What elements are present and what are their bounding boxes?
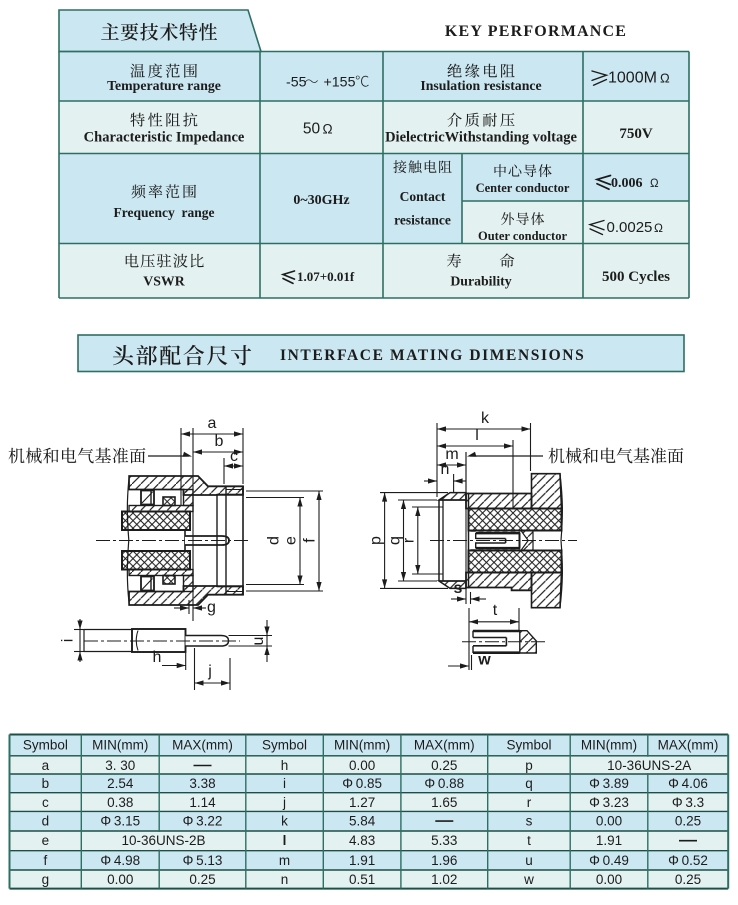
svg-text:MIN(mm): MIN(mm) <box>334 738 390 753</box>
svg-text:1.27: 1.27 <box>349 795 375 810</box>
svg-text:t: t <box>493 602 498 619</box>
svg-text:500 Cycles: 500 Cycles <box>602 269 670 285</box>
svg-text:m: m <box>279 853 290 868</box>
svg-text:1.91: 1.91 <box>596 833 622 848</box>
svg-text:1.02: 1.02 <box>431 872 457 887</box>
svg-text:n: n <box>441 461 450 478</box>
svg-text:i: i <box>283 776 286 791</box>
svg-text:Outer conductor: Outer conductor <box>478 229 567 243</box>
svg-text:Φ 4.06: Φ 4.06 <box>668 776 708 791</box>
svg-text:t: t <box>527 833 531 848</box>
svg-text:5.84: 5.84 <box>349 814 376 829</box>
svg-text:Symbol: Symbol <box>23 738 68 753</box>
svg-text:INTERFACE MATING DIMENSIONS: INTERFACE MATING DIMENSIONS <box>280 347 585 364</box>
svg-text:b: b <box>42 776 50 791</box>
svg-text:u: u <box>525 853 533 868</box>
svg-text:e: e <box>42 833 50 848</box>
svg-text:k: k <box>281 814 288 829</box>
svg-text:p: p <box>368 536 385 545</box>
svg-text:a: a <box>42 758 50 773</box>
svg-text:f: f <box>302 538 319 543</box>
svg-text:Ω: Ω <box>323 122 333 137</box>
svg-text:0.25: 0.25 <box>675 814 701 829</box>
svg-text:Symbol: Symbol <box>262 738 307 753</box>
svg-text:-55: -55 <box>286 75 307 91</box>
svg-text:750V: 750V <box>619 126 653 142</box>
svg-text:0.00: 0.00 <box>596 872 622 887</box>
svg-text:Φ 3.89: Φ 3.89 <box>589 776 629 791</box>
svg-text:0.51: 0.51 <box>349 872 375 887</box>
svg-text:1.96: 1.96 <box>431 853 457 868</box>
svg-text:l: l <box>283 833 287 848</box>
svg-text:VSWR: VSWR <box>143 274 185 289</box>
svg-text:Temperature range: Temperature range <box>107 78 221 93</box>
svg-text:KEY PERFORMANCE: KEY PERFORMANCE <box>445 23 627 40</box>
svg-text:Φ 5.13: Φ 5.13 <box>183 853 223 868</box>
svg-text:1.07+0.01f: 1.07+0.01f <box>297 269 355 284</box>
svg-text:0.25: 0.25 <box>675 872 701 887</box>
svg-text:Ω: Ω <box>660 71 670 86</box>
svg-text:3.38: 3.38 <box>189 776 215 791</box>
svg-text:a: a <box>208 415 217 432</box>
svg-text:Characteristic Impedance: Characteristic Impedance <box>84 130 245 146</box>
svg-text:j: j <box>207 663 212 680</box>
svg-text:resistance: resistance <box>394 213 451 228</box>
svg-text:Φ 3.15: Φ 3.15 <box>100 814 140 829</box>
svg-text:0.0025: 0.0025 <box>607 219 653 236</box>
svg-text:Φ 0.88: Φ 0.88 <box>424 776 464 791</box>
svg-text:s: s <box>454 580 463 597</box>
svg-text:Center conductor: Center conductor <box>476 181 570 195</box>
svg-text:Φ 0.52: Φ 0.52 <box>668 853 708 868</box>
svg-text:0.38: 0.38 <box>107 795 133 810</box>
svg-text:Contact: Contact <box>400 189 446 204</box>
svg-text:10-36UNS-2A: 10-36UNS-2A <box>607 758 691 773</box>
svg-text:10-36UNS-2B: 10-36UNS-2B <box>122 833 206 848</box>
svg-text:0.00: 0.00 <box>596 814 622 829</box>
svg-text:b: b <box>215 433 224 450</box>
svg-text:2.54: 2.54 <box>107 776 134 791</box>
svg-text:f: f <box>44 853 48 868</box>
svg-text:Durability: Durability <box>450 274 511 289</box>
svg-text:+155: +155 <box>324 75 356 91</box>
svg-text:0.006: 0.006 <box>611 176 643 191</box>
svg-text:g: g <box>42 872 50 887</box>
svg-text:Symbol: Symbol <box>506 738 551 753</box>
svg-text:r: r <box>401 537 418 543</box>
svg-text:0.25: 0.25 <box>431 758 457 773</box>
svg-text:MAX(mm): MAX(mm) <box>172 738 233 753</box>
svg-text:e: e <box>283 536 300 545</box>
svg-text:g: g <box>207 599 216 616</box>
svg-text:MIN(mm): MIN(mm) <box>92 738 148 753</box>
svg-text:w: w <box>477 652 491 669</box>
svg-text:Φ 3.3: Φ 3.3 <box>672 795 704 810</box>
svg-text:k: k <box>481 410 490 427</box>
svg-text:3. 30: 3. 30 <box>105 758 135 773</box>
svg-text:n: n <box>281 872 289 887</box>
svg-text:0.00: 0.00 <box>349 758 375 773</box>
svg-text:4.83: 4.83 <box>349 833 375 848</box>
svg-text:1000M: 1000M <box>608 70 657 87</box>
svg-text:s: s <box>526 814 533 829</box>
svg-text:Φ 3.23: Φ 3.23 <box>589 795 629 810</box>
svg-text:Insulation resistance: Insulation resistance <box>420 78 541 93</box>
svg-text:h: h <box>281 758 289 773</box>
svg-text:i: i <box>60 639 77 643</box>
svg-text:Φ 0.85: Φ 0.85 <box>342 776 382 791</box>
svg-text:d: d <box>42 814 50 829</box>
svg-text:Φ 3.22: Φ 3.22 <box>183 814 223 829</box>
svg-text:c: c <box>42 795 49 810</box>
svg-text:50: 50 <box>303 121 321 138</box>
svg-text:1.65: 1.65 <box>431 795 457 810</box>
svg-text:MAX(mm): MAX(mm) <box>658 738 719 753</box>
svg-text:h: h <box>153 649 162 666</box>
svg-text:1.91: 1.91 <box>349 853 375 868</box>
svg-text:c: c <box>230 448 238 465</box>
svg-text:0.25: 0.25 <box>189 872 215 887</box>
svg-text:Φ 0.49: Φ 0.49 <box>589 853 629 868</box>
svg-text:q: q <box>525 776 533 791</box>
svg-text:5.33: 5.33 <box>431 833 457 848</box>
svg-text:j: j <box>282 795 286 810</box>
svg-text:MIN(mm): MIN(mm) <box>581 738 637 753</box>
svg-text:1.14: 1.14 <box>189 795 216 810</box>
svg-text:MAX(mm): MAX(mm) <box>414 738 475 753</box>
svg-text:p: p <box>525 758 533 773</box>
svg-text:DielectricWithstanding voltage: DielectricWithstanding voltage <box>385 130 577 146</box>
svg-text:l: l <box>475 427 479 444</box>
svg-text:d: d <box>266 536 283 545</box>
svg-text:w: w <box>523 872 534 887</box>
svg-text:Φ 4.98: Φ 4.98 <box>100 853 140 868</box>
svg-text:Ω: Ω <box>650 178 659 190</box>
svg-text:u: u <box>250 637 267 646</box>
svg-text:0.00: 0.00 <box>107 872 133 887</box>
svg-text:r: r <box>527 795 532 810</box>
svg-text:Ω: Ω <box>654 221 663 235</box>
svg-text:Frequency range: Frequency range <box>114 205 215 220</box>
svg-text:0~30GHz: 0~30GHz <box>293 193 349 208</box>
